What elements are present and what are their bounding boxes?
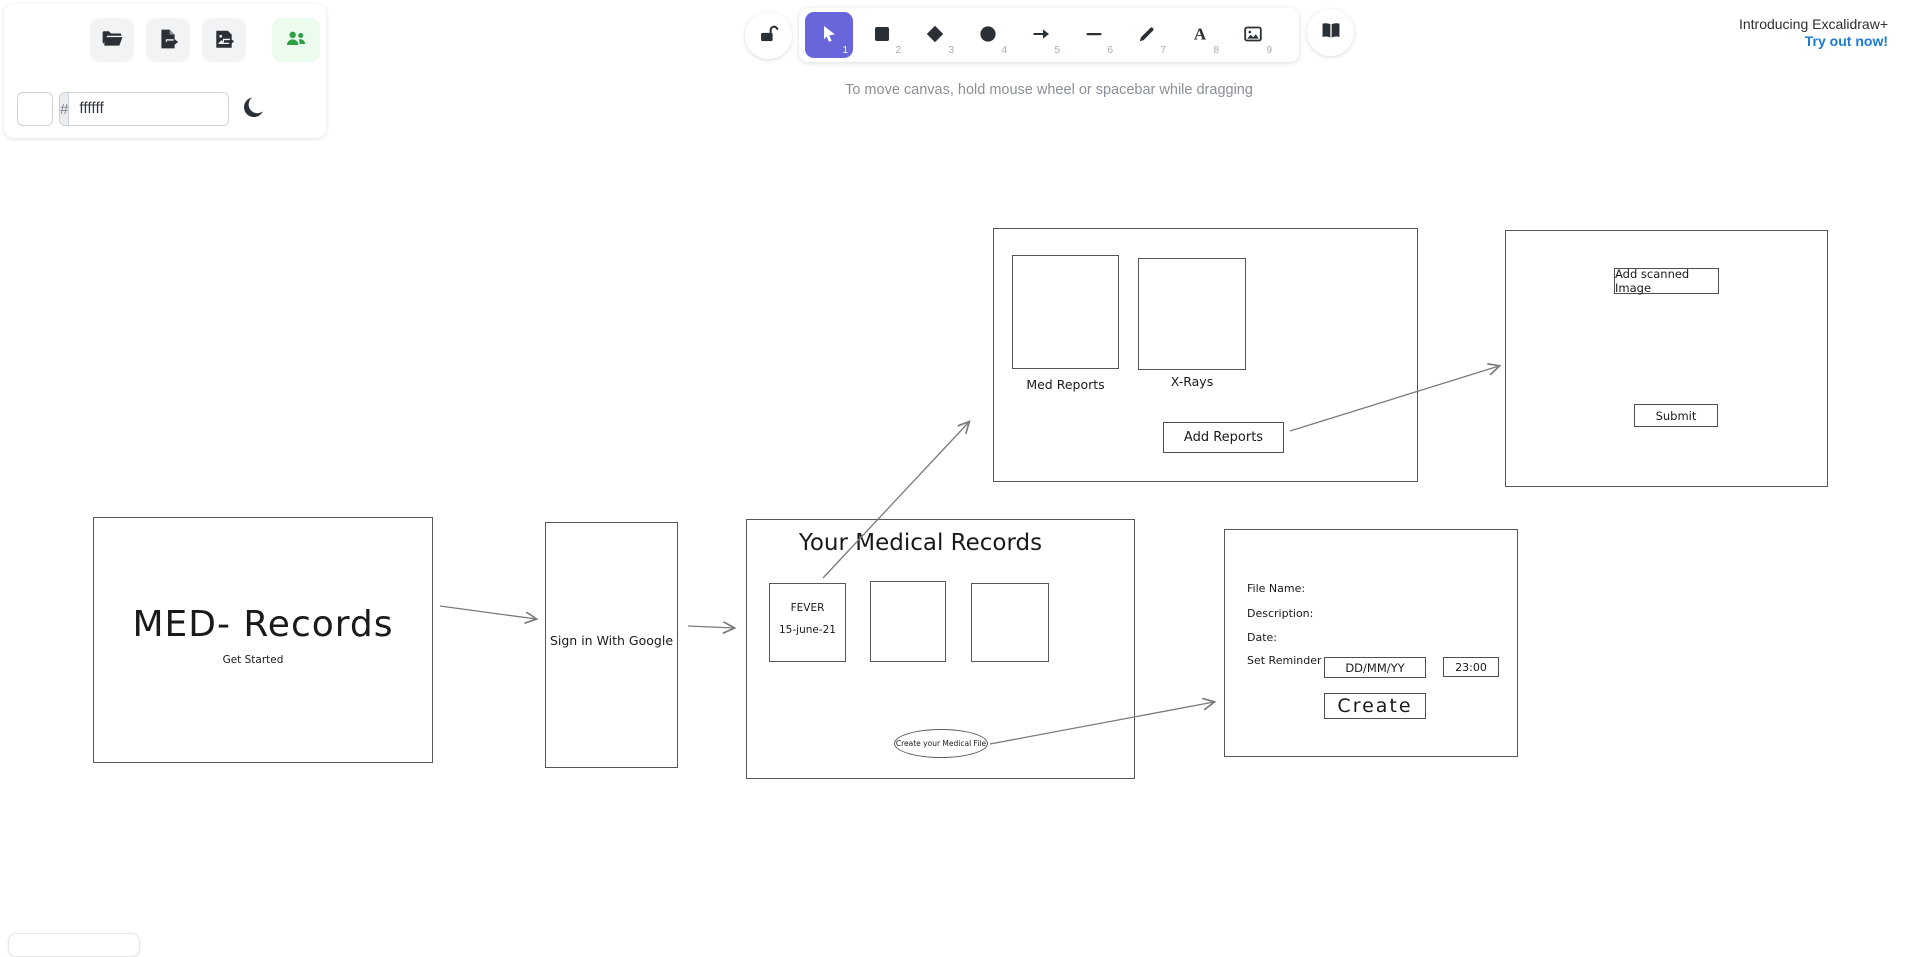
text-icon: A [1190, 24, 1210, 47]
theme-toggle-button[interactable] [237, 92, 271, 126]
arrow-med-to-signin[interactable] [440, 606, 536, 619]
record-card-title: FEVER [770, 602, 845, 614]
arrow-icon [1031, 24, 1051, 47]
add-reports-button[interactable]: Add Reports [1163, 422, 1284, 453]
lock-open-icon [758, 23, 780, 48]
canvas-hint: To move canvas, hold mouse wheel or spac… [845, 82, 1253, 98]
tool-arrow[interactable]: 5 [1017, 12, 1065, 58]
description-label: Description: [1247, 607, 1313, 620]
tool-diamond[interactable]: 3 [911, 12, 959, 58]
signin-label: Sign in With Google [546, 633, 677, 648]
moon-icon [241, 95, 267, 124]
canvas-background-hex-control: # [59, 92, 229, 126]
med-reports-thumbnail[interactable] [1012, 255, 1119, 369]
create-file-form-box[interactable]: File Name: Description: Date: Set Remind… [1224, 529, 1518, 757]
reports-box[interactable]: Med Reports X-Rays Add Reports [993, 228, 1418, 482]
lock-button[interactable] [745, 12, 792, 59]
file-export-icon [157, 28, 179, 53]
submit-button[interactable]: Submit [1634, 404, 1718, 427]
reminder-time-field[interactable]: 23:00 [1443, 657, 1499, 677]
shape-toolbar: 1 2 3 4 5 6 7 A [799, 8, 1299, 62]
collaborators-icon [285, 28, 307, 53]
folder-open-icon [101, 28, 123, 53]
date-label: Date: [1247, 631, 1277, 644]
live-collaboration-button[interactable] [272, 18, 320, 62]
get-started-label: Get Started [94, 654, 412, 666]
create-medical-file-ellipse[interactable]: Create your Medical File [894, 729, 988, 758]
open-file-button[interactable] [90, 18, 134, 62]
tool-draw[interactable]: 7 [1123, 12, 1171, 58]
med-records-box[interactable]: MED- Records Get Started [93, 517, 433, 763]
create-button[interactable]: Create [1324, 693, 1426, 719]
add-scanned-image-label: Add scanned Image [1615, 267, 1718, 295]
tool-line[interactable]: 6 [1070, 12, 1118, 58]
square-icon [872, 24, 892, 47]
create-medical-file-label: Create your Medical File [896, 739, 986, 748]
add-reports-label: Add Reports [1184, 430, 1263, 445]
create-label: Create [1337, 695, 1412, 717]
medical-records-box[interactable]: Your Medical Records FEVER 15-june-21 Cr… [746, 519, 1135, 779]
hex-prefix: # [60, 93, 69, 125]
record-card-empty-1[interactable] [870, 581, 946, 662]
tool-text[interactable]: A 8 [1176, 12, 1224, 58]
tool-ellipse[interactable]: 4 [964, 12, 1012, 58]
tool-rectangle[interactable]: 2 [858, 12, 906, 58]
file-name-label: File Name: [1247, 582, 1305, 595]
record-card-date: 15-june-21 [770, 624, 845, 636]
circle-icon [978, 24, 998, 47]
record-card-empty-2[interactable] [971, 583, 1049, 662]
export-file-button[interactable] [146, 18, 190, 62]
zoom-controls[interactable] [8, 933, 140, 957]
arrow-signin-to-records[interactable] [688, 626, 734, 628]
med-records-title: MED- Records [94, 604, 432, 645]
reminder-date-value: DD/MM/YY [1345, 661, 1404, 675]
record-card-fever[interactable]: FEVER 15-june-21 [769, 583, 846, 662]
canvas-background-input[interactable] [69, 93, 229, 125]
app-menu-panel: # [4, 4, 326, 138]
export-image-button[interactable] [202, 18, 246, 62]
reminder-date-field[interactable]: DD/MM/YY [1324, 657, 1426, 678]
library-button[interactable] [1307, 9, 1354, 56]
med-reports-label: Med Reports [1012, 377, 1119, 392]
promo-title: Introducing Excalidraw+ [1739, 16, 1888, 33]
excalidraw-plus-promo: Introducing Excalidraw+ Try out now! [1739, 16, 1888, 50]
medical-records-title: Your Medical Records [747, 530, 1094, 556]
signin-box[interactable]: Sign in With Google [545, 522, 678, 768]
image-icon [1243, 24, 1263, 47]
tool-image[interactable]: 9 [1229, 12, 1277, 58]
cursor-icon [819, 24, 839, 47]
canvas-background-swatch[interactable] [17, 92, 53, 126]
xrays-thumbnail[interactable] [1138, 258, 1246, 370]
svg-text:A: A [1194, 24, 1207, 43]
pencil-icon [1137, 24, 1157, 47]
set-reminder-label: Set Reminder [1247, 654, 1322, 667]
promo-link[interactable]: Try out now! [1739, 33, 1888, 50]
scan-box[interactable]: Add scanned Image Submit [1505, 230, 1828, 487]
add-scanned-image-button[interactable]: Add scanned Image [1614, 268, 1719, 294]
diamond-icon [925, 24, 945, 47]
reminder-time-value: 23:00 [1455, 661, 1487, 674]
line-icon [1084, 24, 1104, 47]
xrays-label: X-Rays [1138, 374, 1246, 389]
image-export-icon [213, 28, 235, 53]
submit-label: Submit [1656, 409, 1697, 423]
tool-selection[interactable]: 1 [805, 12, 853, 58]
book-icon [1320, 20, 1342, 45]
